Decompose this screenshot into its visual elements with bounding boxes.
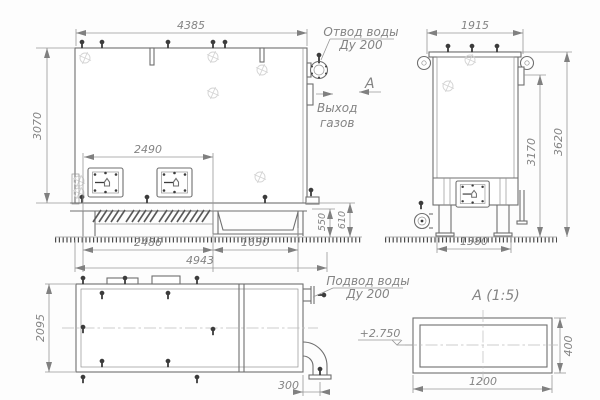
gas-exit-label-2: газов — [320, 116, 354, 130]
bolt-icon — [195, 375, 200, 384]
top-cap — [429, 52, 521, 57]
boiler-drawing: А Выход газов Отвод воды Ду 200 4385 307… — [0, 0, 600, 400]
bolt-icon — [195, 276, 200, 285]
duct-stub-side — [518, 67, 524, 85]
section-a-view: А (1:5) +2.750 1200 400 — [358, 288, 575, 393]
water-outlet-label-2: Ду 200 — [338, 38, 383, 52]
gas-exit-label-1: Выход — [317, 101, 357, 115]
bolt-icon — [100, 40, 105, 49]
water-supply-label-1: Подвод воды — [326, 274, 409, 288]
grate-hatch — [93, 210, 210, 222]
thermowell — [260, 48, 264, 62]
dim-2486: 2486 — [134, 236, 162, 249]
bolt-icon — [80, 40, 85, 49]
dim-3620: 3620 — [552, 128, 565, 156]
gas-exit-arrows — [316, 92, 381, 94]
dim-1200: 1200 — [469, 375, 497, 388]
bolt-icon — [211, 40, 216, 49]
plan-hatches — [107, 276, 180, 284]
bolt-icon — [317, 53, 322, 62]
bolt-icon — [81, 375, 86, 384]
legs-side — [436, 205, 512, 236]
plan-view: Подвод воды Ду 200 2095 300 — [34, 274, 410, 396]
front-view: А Выход газов Отвод воды Ду 200 4385 307… — [31, 19, 399, 272]
dim-4385: 4385 — [177, 19, 205, 32]
ash-trough — [218, 212, 298, 230]
furnace-door — [88, 168, 123, 197]
supply-pipe-elbow — [303, 342, 331, 379]
water-outlet-flange — [307, 53, 328, 79]
right-base-bracket — [306, 188, 319, 204]
furnace-door-side — [456, 181, 489, 207]
dim-4943: 4943 — [186, 254, 214, 267]
dim-3070: 3070 — [31, 112, 44, 140]
bolt-icon — [446, 44, 451, 53]
dim-2490: 2490 — [134, 143, 162, 156]
bolt-icon — [166, 40, 171, 49]
bolt-icon — [419, 201, 424, 210]
dim-550: 550 — [317, 213, 328, 231]
furnace-door — [157, 168, 192, 197]
water-outlet-label-1: Отвод воды — [323, 25, 398, 39]
engineering-drawing-canvas: А Выход газов Отвод воды Ду 200 4385 307… — [0, 0, 600, 400]
ground-hatch-front — [55, 237, 362, 240]
section-title: А (1:5) — [471, 288, 519, 304]
thermowell — [150, 48, 154, 65]
bolt-icon — [309, 188, 314, 197]
dim-2095: 2095 — [34, 314, 47, 342]
elevation-mark: +2.750 — [358, 327, 413, 345]
section-arrow-label: А — [364, 76, 375, 92]
bolt-icon — [495, 44, 500, 53]
top-valves — [80, 40, 228, 49]
dim-610: 610 — [337, 211, 348, 229]
water-supply-label-2: Ду 200 — [345, 287, 390, 301]
dim-3170: 3170 — [525, 138, 538, 166]
water-supply-stub — [303, 286, 326, 304]
duct-outer — [413, 318, 552, 373]
supply-pipe-side — [415, 201, 434, 229]
dim-1915: 1915 — [461, 19, 489, 32]
bolt-icon — [318, 367, 323, 376]
bolt-icon — [470, 44, 475, 53]
bolt-icon — [81, 276, 86, 285]
side-view: 1915 3170 3620 1380 — [415, 19, 573, 253]
dim-1380: 1380 — [460, 235, 488, 248]
dim-400: 400 — [562, 336, 575, 357]
bolt-icon — [223, 40, 228, 49]
top-valves-side — [446, 44, 500, 53]
dim-1630: 1630 — [241, 236, 269, 249]
elevation-value: +2.750 — [360, 327, 401, 340]
dim-300: 300 — [278, 379, 299, 392]
gas-duct-stub — [307, 84, 313, 105]
